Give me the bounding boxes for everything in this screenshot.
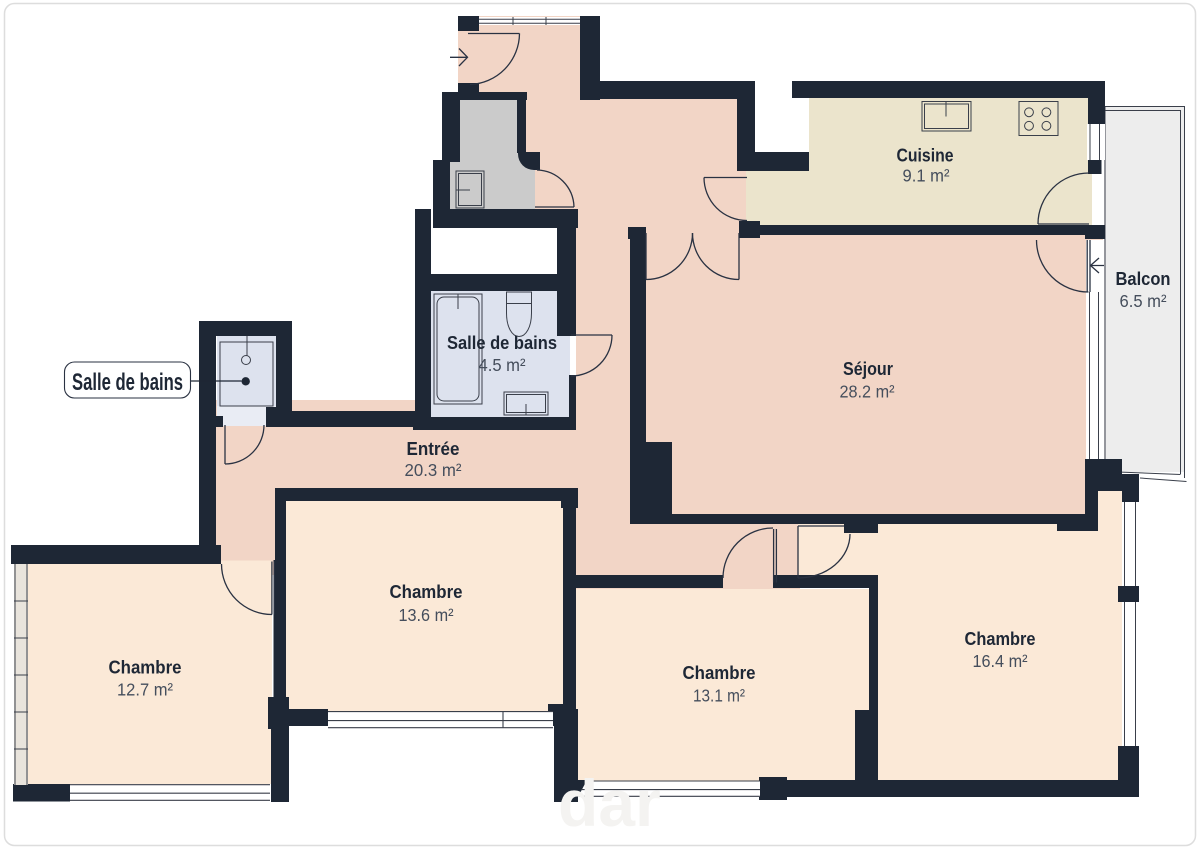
svg-text:20.3 m²: 20.3 m²	[405, 460, 462, 480]
svg-text:Chambre: Chambre	[390, 582, 463, 602]
svg-text:dar: dar	[558, 766, 661, 840]
svg-text:Salle de bains: Salle de bains	[447, 333, 557, 353]
svg-text:4.5 m²: 4.5 m²	[479, 355, 526, 375]
svg-text:6.5 m²: 6.5 m²	[1120, 291, 1167, 311]
svg-text:12.7 m²: 12.7 m²	[117, 680, 173, 700]
svg-text:Chambre: Chambre	[683, 663, 756, 683]
svg-text:Séjour: Séjour	[843, 359, 893, 379]
svg-text:Entrée: Entrée	[407, 439, 460, 459]
svg-text:28.2 m²: 28.2 m²	[840, 382, 895, 402]
svg-text:Chambre: Chambre	[109, 658, 182, 678]
svg-text:13.6 m²: 13.6 m²	[399, 605, 454, 625]
svg-text:Cuisine: Cuisine	[897, 146, 954, 166]
svg-text:13.1 m²: 13.1 m²	[693, 686, 745, 706]
svg-text:Salle de bains: Salle de bains	[72, 369, 183, 396]
svg-text:9.1 m²: 9.1 m²	[903, 166, 950, 186]
svg-text:16.4 m²: 16.4 m²	[973, 651, 1028, 671]
svg-text:Balcon: Balcon	[1116, 269, 1171, 289]
svg-text:Chambre: Chambre	[965, 629, 1036, 649]
